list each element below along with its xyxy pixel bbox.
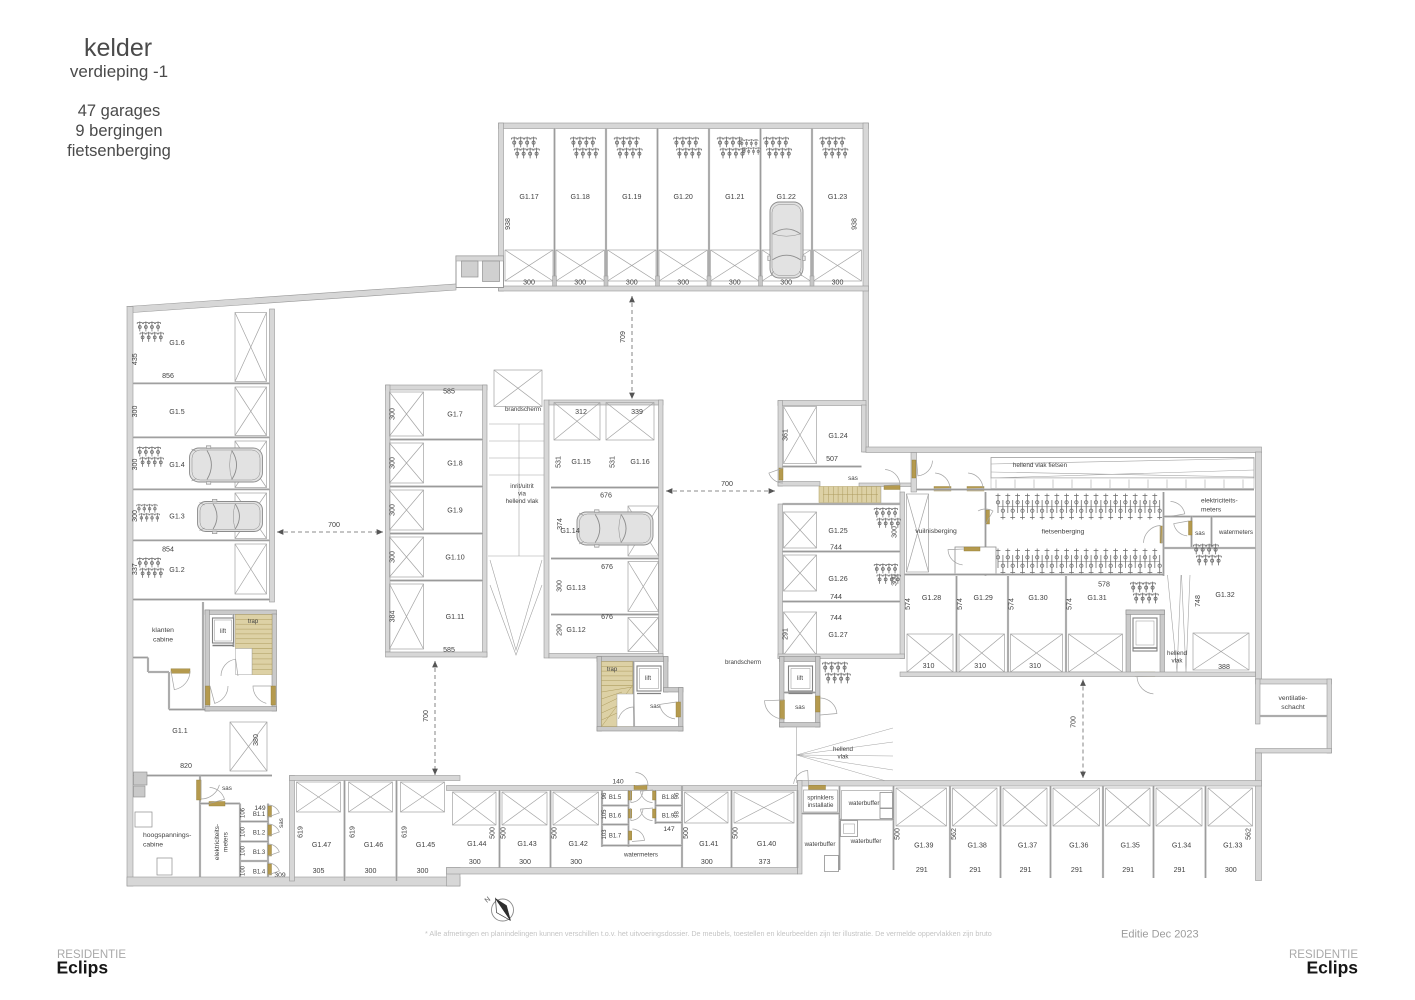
svg-text:B1.6: B1.6	[609, 814, 622, 820]
svg-text:300: 300	[365, 867, 377, 875]
svg-text:G1.40: G1.40	[757, 840, 776, 848]
svg-text:373: 373	[759, 858, 771, 866]
svg-text:Eclips: Eclips	[1306, 958, 1358, 978]
svg-text:G1.37: G1.37	[1018, 842, 1037, 850]
svg-text:938: 938	[851, 218, 859, 230]
svg-text:sas: sas	[650, 703, 660, 710]
svg-text:G1.22: G1.22	[777, 193, 796, 201]
svg-text:vlak: vlak	[837, 754, 849, 761]
svg-text:300: 300	[729, 279, 741, 287]
svg-text:G1.36: G1.36	[1069, 842, 1088, 850]
svg-text:388: 388	[1218, 663, 1230, 671]
svg-text:291: 291	[969, 866, 981, 874]
svg-text:trap: trap	[248, 619, 259, 625]
svg-text:619: 619	[349, 826, 357, 838]
svg-text:G1.27: G1.27	[828, 631, 847, 639]
svg-text:G1.28: G1.28	[922, 594, 941, 602]
svg-text:676: 676	[601, 613, 613, 621]
svg-text:339: 339	[631, 408, 643, 416]
svg-text:300: 300	[780, 279, 792, 287]
svg-text:ventilatie-: ventilatie-	[1278, 695, 1307, 702]
svg-text:531: 531	[609, 456, 617, 468]
svg-text:500: 500	[500, 827, 508, 839]
svg-text:G1.3: G1.3	[169, 513, 184, 521]
svg-text:G1.7: G1.7	[447, 411, 462, 419]
svg-text:9 bergingen: 9 bergingen	[75, 122, 162, 140]
svg-text:300: 300	[469, 858, 481, 866]
svg-text:96: 96	[675, 792, 681, 799]
svg-text:schacht: schacht	[1281, 704, 1305, 711]
svg-text:G1.19: G1.19	[622, 193, 641, 201]
svg-text:300: 300	[417, 867, 429, 875]
svg-text:300: 300	[832, 279, 844, 287]
svg-text:G1.21: G1.21	[725, 193, 744, 201]
svg-text:G1.8: G1.8	[447, 460, 462, 468]
svg-text:G1.4: G1.4	[169, 461, 184, 469]
svg-text:700: 700	[721, 480, 733, 488]
svg-text:G1.14: G1.14	[560, 527, 579, 535]
svg-text:G1.39: G1.39	[914, 842, 933, 850]
svg-text:290: 290	[556, 624, 564, 636]
svg-text:G1.25: G1.25	[828, 527, 847, 535]
svg-text:147: 147	[663, 826, 675, 833]
svg-text:100: 100	[241, 845, 247, 856]
svg-text:hellend vlak: hellend vlak	[506, 498, 540, 505]
svg-text:lift: lift	[797, 676, 803, 682]
svg-text:562: 562	[950, 828, 958, 840]
svg-text:300: 300	[389, 504, 397, 516]
svg-text:G1.26: G1.26	[828, 575, 847, 583]
svg-text:98: 98	[675, 811, 681, 818]
svg-text:vuilnisberging: vuilnisberging	[915, 528, 957, 535]
svg-text:fietsenberging: fietsenberging	[67, 142, 171, 160]
svg-text:337: 337	[131, 563, 139, 575]
svg-text:cabine: cabine	[143, 842, 163, 849]
svg-text:300: 300	[574, 279, 586, 287]
svg-text:G1.12: G1.12	[566, 626, 585, 634]
svg-text:300: 300	[131, 406, 139, 418]
svg-text:G1.13: G1.13	[566, 584, 585, 592]
svg-text:B1.7: B1.7	[609, 834, 622, 840]
svg-text:291: 291	[1122, 866, 1134, 874]
svg-text:sas: sas	[278, 818, 285, 828]
svg-text:G1.5: G1.5	[169, 408, 184, 416]
svg-text:709: 709	[619, 331, 627, 343]
svg-text:G1.17: G1.17	[519, 193, 538, 201]
svg-text:Editie Dec 2023: Editie Dec 2023	[1121, 929, 1199, 941]
svg-text:watermeters: watermeters	[623, 852, 658, 859]
svg-text:G1.32: G1.32	[1215, 591, 1234, 599]
svg-text:G1.18: G1.18	[571, 193, 590, 201]
svg-text:sprinklers: sprinklers	[807, 795, 833, 802]
svg-text:291: 291	[782, 628, 790, 640]
svg-text:G1.20: G1.20	[674, 193, 693, 201]
svg-text:105: 105	[602, 809, 608, 820]
svg-text:meters: meters	[223, 831, 230, 852]
svg-text:500: 500	[682, 827, 690, 839]
svg-text:291: 291	[916, 866, 928, 874]
svg-text:trap: trap	[607, 667, 618, 673]
svg-text:291: 291	[1071, 866, 1083, 874]
svg-text:149: 149	[254, 805, 266, 812]
svg-text:cabine: cabine	[153, 637, 173, 644]
svg-text:676: 676	[601, 563, 613, 571]
svg-text:sas: sas	[222, 785, 232, 792]
svg-text:via: via	[518, 491, 526, 498]
svg-text:140: 140	[612, 779, 624, 786]
svg-text:619: 619	[297, 826, 305, 838]
svg-text:300: 300	[389, 457, 397, 469]
svg-text:854: 854	[162, 546, 174, 554]
svg-text:291: 291	[1174, 866, 1186, 874]
svg-text:B1.1: B1.1	[253, 812, 266, 818]
svg-text:G1.33: G1.33	[1223, 842, 1242, 850]
svg-text:500: 500	[732, 827, 740, 839]
svg-text:G1.10: G1.10	[445, 554, 464, 562]
svg-text:305: 305	[313, 867, 325, 875]
svg-text:G1.41: G1.41	[699, 840, 718, 848]
svg-text:meters: meters	[1201, 507, 1222, 514]
svg-text:inrit/uitrit: inrit/uitrit	[510, 483, 534, 490]
svg-text:sas: sas	[1195, 530, 1205, 537]
svg-text:748: 748	[1194, 595, 1202, 607]
svg-text:installatie: installatie	[808, 802, 834, 809]
svg-text:500: 500	[894, 828, 902, 840]
svg-text:300: 300	[701, 858, 713, 866]
svg-text:562: 562	[1245, 828, 1253, 840]
svg-text:B1.5: B1.5	[609, 795, 622, 801]
svg-text:G1.6: G1.6	[169, 339, 184, 347]
svg-text:47 garages: 47 garages	[78, 102, 161, 120]
svg-text:310: 310	[974, 662, 986, 670]
svg-text:G1.31: G1.31	[1087, 594, 1106, 602]
svg-text:300: 300	[1225, 866, 1237, 874]
svg-text:500: 500	[551, 827, 559, 839]
svg-text:elektriciteits-: elektriciteits-	[1201, 498, 1238, 505]
svg-text:361: 361	[782, 429, 790, 441]
svg-text:N: N	[484, 896, 492, 905]
svg-text:574: 574	[1008, 598, 1016, 610]
svg-text:744: 744	[830, 593, 842, 601]
svg-text:hellend: hellend	[1167, 650, 1188, 657]
svg-text:G1.29: G1.29	[974, 594, 993, 602]
svg-text:hoogspannings-: hoogspannings-	[143, 832, 191, 839]
svg-text:106: 106	[241, 807, 247, 818]
svg-text:310: 310	[923, 662, 935, 670]
svg-text:300: 300	[570, 858, 582, 866]
svg-text:waterbuffer: waterbuffer	[848, 800, 880, 807]
svg-text:100: 100	[241, 865, 247, 876]
svg-text:856: 856	[162, 372, 174, 380]
svg-text:676: 676	[600, 492, 612, 500]
svg-text:938: 938	[504, 218, 512, 230]
svg-text:G1.2: G1.2	[169, 566, 184, 574]
svg-text:507: 507	[826, 455, 838, 463]
svg-text:700: 700	[422, 710, 430, 722]
svg-text:578: 578	[1098, 581, 1110, 589]
svg-text:G1.46: G1.46	[364, 841, 383, 849]
svg-text:G1.11: G1.11	[446, 613, 465, 621]
svg-text:574: 574	[956, 598, 964, 610]
svg-text:B1.3: B1.3	[253, 850, 266, 856]
svg-text:300: 300	[389, 551, 397, 563]
svg-text:G1.15: G1.15	[571, 458, 590, 466]
svg-text:300: 300	[519, 858, 531, 866]
svg-text:sas: sas	[795, 704, 805, 711]
svg-text:kelder: kelder	[84, 34, 152, 62]
svg-text:verdieping -1: verdieping -1	[70, 62, 168, 81]
svg-text:574: 574	[904, 598, 912, 610]
svg-text:B1.4: B1.4	[253, 870, 266, 876]
svg-text:fietsenberging: fietsenberging	[1042, 529, 1085, 536]
svg-text:312: 312	[575, 408, 587, 416]
svg-text:820: 820	[180, 762, 192, 770]
svg-text:G1.34: G1.34	[1172, 842, 1191, 850]
svg-text:619: 619	[401, 826, 409, 838]
svg-text:300: 300	[626, 279, 638, 287]
svg-text:G1.16: G1.16	[630, 458, 649, 466]
svg-text:300: 300	[389, 408, 397, 420]
svg-text:300: 300	[131, 459, 139, 471]
svg-text:300: 300	[131, 510, 139, 522]
svg-text:300: 300	[677, 279, 689, 287]
svg-text:G1.24: G1.24	[828, 432, 847, 440]
svg-text:300: 300	[556, 580, 564, 592]
svg-text:G1.38: G1.38	[968, 842, 987, 850]
svg-text:G1.1: G1.1	[172, 727, 187, 735]
svg-text:waterbuffer: waterbuffer	[804, 841, 836, 848]
svg-text:96: 96	[602, 792, 608, 799]
svg-text:sas: sas	[848, 475, 858, 482]
svg-text:380: 380	[252, 734, 260, 746]
svg-text:585: 585	[443, 388, 455, 396]
svg-text:744: 744	[830, 614, 842, 622]
svg-text:700: 700	[328, 521, 340, 529]
svg-text:700: 700	[1070, 716, 1078, 728]
svg-text:300: 300	[891, 526, 899, 538]
svg-text:hellend: hellend	[833, 746, 854, 753]
svg-text:B1.2: B1.2	[253, 831, 266, 837]
svg-text:hellend vlak fietsen: hellend vlak fietsen	[1013, 462, 1068, 469]
svg-text:384: 384	[389, 611, 397, 623]
svg-text:G1.44: G1.44	[467, 840, 486, 848]
svg-text:vlak: vlak	[1171, 658, 1183, 665]
svg-text:watermeters: watermeters	[1218, 529, 1253, 536]
svg-text:435: 435	[131, 353, 139, 365]
svg-text:310: 310	[1029, 662, 1041, 670]
svg-text:G1.30: G1.30	[1028, 594, 1047, 602]
svg-text:klanten: klanten	[152, 627, 174, 634]
svg-text:brandscherm: brandscherm	[505, 406, 541, 413]
svg-text:G1.9: G1.9	[447, 507, 462, 515]
svg-text:Eclips: Eclips	[57, 958, 109, 978]
svg-text:B1.8: B1.8	[662, 795, 675, 801]
svg-text:744: 744	[830, 544, 842, 552]
svg-text:B1.9: B1.9	[662, 814, 675, 820]
svg-text:waterbuffer: waterbuffer	[850, 838, 882, 845]
svg-text:574: 574	[1066, 598, 1074, 610]
svg-text:585: 585	[443, 646, 455, 654]
svg-text:500: 500	[489, 827, 497, 839]
svg-text:G1.23: G1.23	[828, 193, 847, 201]
svg-text:G1.45: G1.45	[416, 841, 435, 849]
svg-text:lift: lift	[645, 676, 651, 682]
svg-text:300: 300	[523, 279, 535, 287]
svg-text:G1.42: G1.42	[569, 840, 588, 848]
svg-text:G1.35: G1.35	[1121, 842, 1140, 850]
svg-text:G1.43: G1.43	[517, 840, 536, 848]
svg-text:291: 291	[1020, 866, 1032, 874]
svg-text:G1.47: G1.47	[312, 841, 331, 849]
svg-text:531: 531	[555, 456, 563, 468]
svg-text:100: 100	[241, 826, 247, 837]
svg-text:* Alle afmetingen en planindel: * Alle afmetingen en planindelingen kunn…	[425, 929, 992, 938]
svg-text:103: 103	[602, 829, 608, 840]
svg-text:elektriciteits-: elektriciteits-	[214, 824, 221, 860]
svg-text:lift: lift	[220, 629, 226, 635]
svg-text:brandscherm: brandscherm	[725, 659, 761, 666]
